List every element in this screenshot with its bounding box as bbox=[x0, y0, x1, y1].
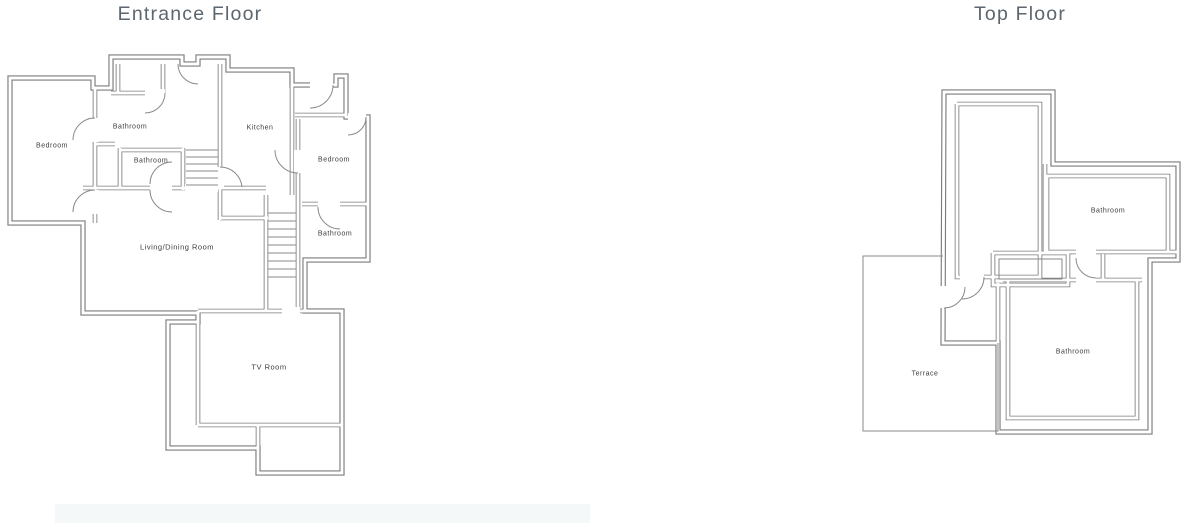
door-opening bbox=[1076, 248, 1096, 256]
door-arc bbox=[1076, 258, 1096, 278]
door-arc bbox=[318, 207, 340, 229]
door-arc bbox=[178, 64, 198, 84]
door-opening bbox=[318, 200, 340, 208]
door-opening bbox=[145, 89, 165, 97]
room-label-top-bathroom-upper: Bathroom bbox=[1091, 208, 1125, 215]
room-label-bathroom-top: Bathroom bbox=[113, 124, 147, 131]
wall-cores bbox=[10, 57, 1178, 473]
wall-core bbox=[943, 92, 1178, 432]
room-label-kitchen: Kitchen bbox=[247, 125, 274, 132]
walls bbox=[10, 57, 1178, 473]
door-opening bbox=[348, 113, 366, 121]
door-opening bbox=[91, 190, 99, 214]
door-arc bbox=[150, 162, 172, 184]
door-opening bbox=[216, 167, 224, 187]
floor-plan-drawing bbox=[0, 0, 1194, 523]
floor-plan-page: Entrance Floor Top Floor bbox=[0, 0, 1194, 523]
room-label-bedroom-left: Bedroom bbox=[36, 143, 68, 150]
door-opening bbox=[960, 273, 984, 281]
room-label-tv-room: TV Room bbox=[251, 363, 286, 372]
room-label-terrace: Terrace bbox=[912, 371, 939, 378]
staircase-lower bbox=[268, 213, 296, 277]
door-opening bbox=[294, 150, 302, 173]
wall-core bbox=[10, 57, 368, 473]
door-opening bbox=[940, 286, 948, 308]
room-label-bedroom-right: Bedroom bbox=[318, 157, 350, 164]
entrance-outer-wall bbox=[10, 57, 368, 473]
room-label-bathroom-right: Bathroom bbox=[318, 231, 352, 238]
door-opening bbox=[282, 307, 300, 315]
door-opening bbox=[310, 81, 333, 89]
door-opening bbox=[150, 184, 172, 192]
door-opening bbox=[1076, 276, 1096, 284]
door-arc bbox=[150, 190, 172, 212]
staircase-upper bbox=[186, 150, 218, 185]
room-label-bathroom-mid: Bathroom bbox=[134, 158, 168, 165]
footer-bar bbox=[55, 504, 590, 523]
room-label-top-bathroom-lower: Bathroom bbox=[1056, 349, 1090, 356]
room-label-living-dining: Living/Dining Room bbox=[140, 243, 214, 252]
door-opening bbox=[91, 118, 99, 142]
top-outer-wall bbox=[943, 92, 1178, 432]
